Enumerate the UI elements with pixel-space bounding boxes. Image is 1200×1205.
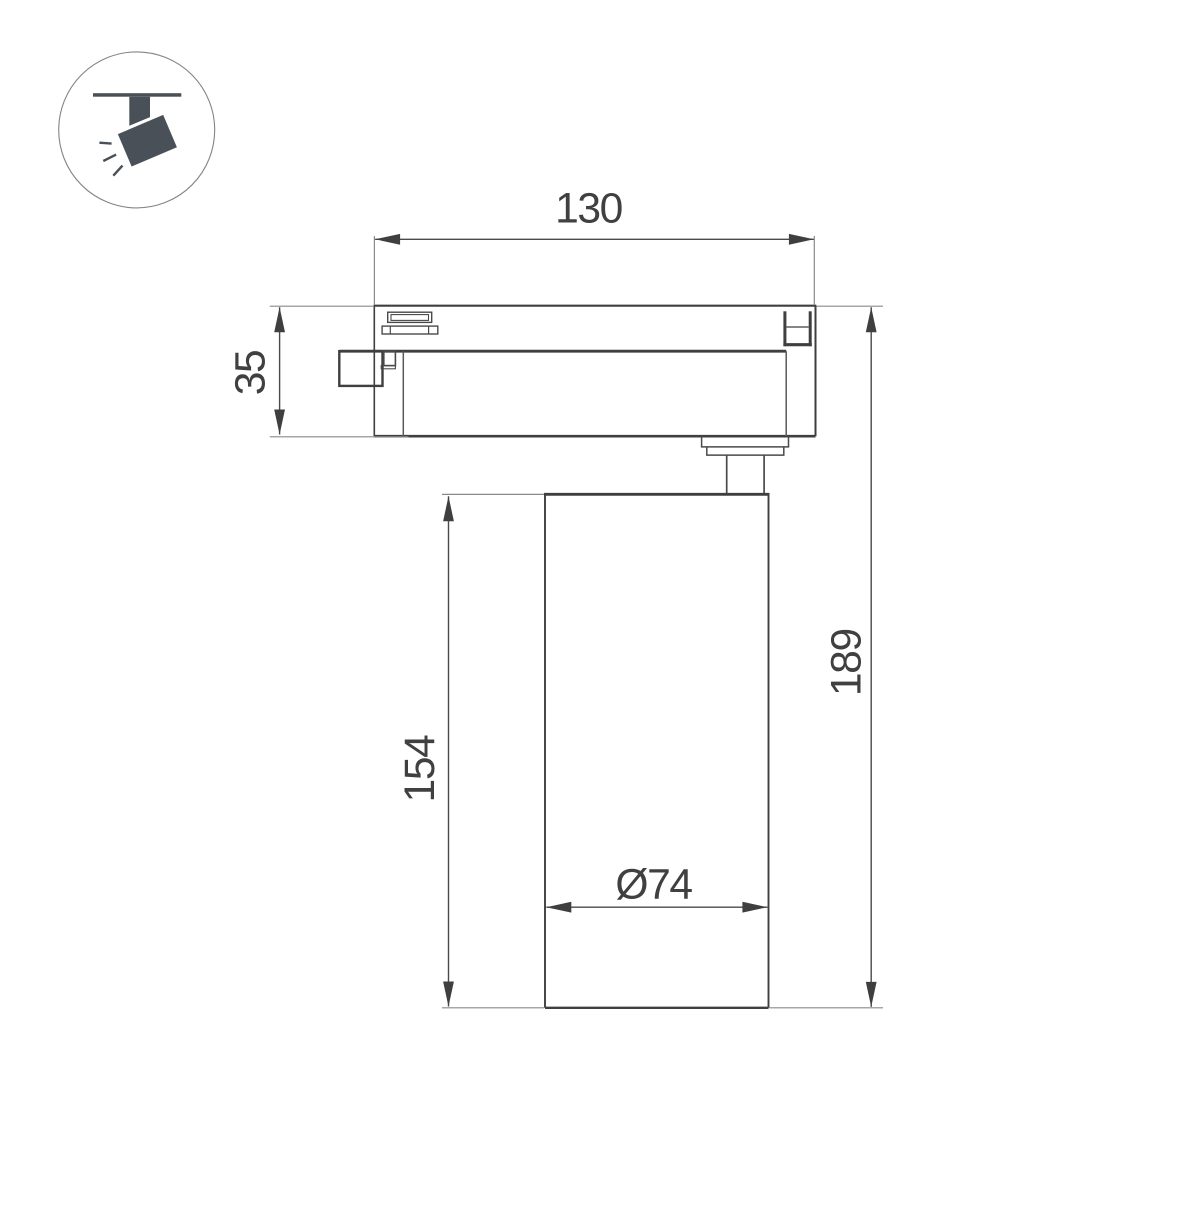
svg-text:35: 35	[227, 351, 275, 396]
svg-text:130: 130	[555, 185, 623, 233]
svg-text:189: 189	[822, 629, 870, 696]
svg-text:Ø74: Ø74	[615, 860, 692, 908]
svg-text:154: 154	[396, 735, 444, 803]
